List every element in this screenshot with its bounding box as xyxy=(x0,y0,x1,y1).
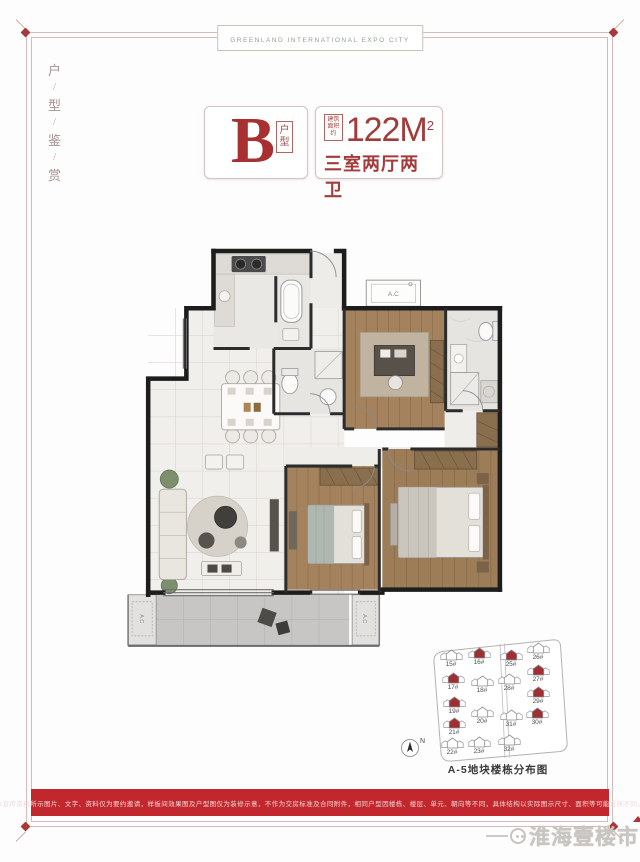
watermark-roof-icon xyxy=(633,816,640,822)
area-value: 122M xyxy=(346,113,427,147)
siteplan-building-20: 20# xyxy=(467,706,497,725)
building-cluster-icon xyxy=(440,649,463,661)
watermark-logo-icon xyxy=(510,828,526,844)
side-slash: / xyxy=(53,116,56,130)
project-name: GREENLAND INTERNATIONAL EXPO CITY xyxy=(230,37,410,44)
unit-letter-tag: 户型 xyxy=(276,121,293,153)
siteplan-building-31: 31# xyxy=(496,709,526,728)
siteplan-building-18: 18# xyxy=(467,675,497,694)
watermark: 淮海壹楼市 xyxy=(486,821,639,851)
watermark-text: 淮海壹楼市 xyxy=(529,821,639,851)
siteplan-building-26: 26# xyxy=(523,642,553,661)
building-cluster-icon xyxy=(441,737,464,749)
balcony: A.C A.C xyxy=(128,595,379,646)
siteplan-building-17: 17# xyxy=(438,672,468,691)
compass-north-icon: N xyxy=(400,735,426,759)
siteplan-building-15: 15# xyxy=(436,649,466,668)
ac-platform-top: A.C xyxy=(366,280,420,306)
poster-page: GREENLAND INTERNATIONAL EXPO CITY 户 / 型 … xyxy=(0,0,640,862)
disclaimer-bar: 本宣传资料所示图片、文字、资料仅为要约邀请，样板间效果图及户型图仅为装修示意，不… xyxy=(31,789,609,816)
side-vertical-label: 户 / 型 / 鉴 / 赏 xyxy=(48,60,61,186)
building-cluster-icon xyxy=(498,734,521,746)
bedroom xyxy=(286,466,379,590)
building-cluster-icon xyxy=(527,664,550,676)
svg-text:N: N xyxy=(420,738,425,745)
siteplan-caption: A-5地块楼栋分布图 xyxy=(418,762,578,777)
study-bedroom xyxy=(344,308,444,429)
ac-label-right: A.C xyxy=(361,614,367,623)
side-char: 户 xyxy=(48,60,61,81)
unit-type-card: B 户型 建筑面积约 122M 2 三室两厅两卫 xyxy=(204,106,443,179)
siteplan-building-27: 27# xyxy=(523,664,553,683)
side-char: 赏 xyxy=(48,165,61,186)
building-cluster-icon xyxy=(443,717,466,729)
corner-tick xyxy=(614,19,625,30)
building-cluster-icon xyxy=(471,675,494,687)
building-cluster-icon xyxy=(526,707,549,719)
siteplan-building-19: 19# xyxy=(439,696,469,715)
side-char: 型 xyxy=(48,95,61,116)
siteplan-building-28: 28# xyxy=(494,673,524,692)
building-cluster-icon xyxy=(471,706,494,718)
siteplan-building-23: 23# xyxy=(464,736,494,755)
corner-tick xyxy=(16,831,27,842)
hall-bathroom xyxy=(274,348,344,413)
side-slash: / xyxy=(53,151,56,165)
building-cluster-icon xyxy=(500,709,523,721)
side-slash: / xyxy=(53,81,56,95)
unit-letter-box: B 户型 xyxy=(204,106,308,179)
building-cluster-icon xyxy=(443,696,466,708)
area-row: 建筑面积约 122M 2 xyxy=(324,113,434,147)
building-cluster-icon xyxy=(468,647,491,659)
side-char: 鉴 xyxy=(48,130,61,151)
master-bathroom xyxy=(447,308,500,410)
ac-label-top: A.C xyxy=(388,291,399,298)
building-cluster-icon xyxy=(442,672,465,684)
building-cluster-icon xyxy=(527,686,550,698)
building-cluster-icon xyxy=(527,642,550,654)
floorplan-drawing: A.C A.C A.C xyxy=(113,248,520,660)
ac-label-left: A.C xyxy=(138,614,144,623)
building-cluster-icon xyxy=(498,673,521,685)
building-cluster-icon xyxy=(468,736,491,748)
siteplan-building-22: 22# xyxy=(437,737,467,756)
rooms-description: 三室两厅两卫 xyxy=(324,150,434,202)
siteplan-building-25: 25# xyxy=(496,649,526,668)
watermark-line xyxy=(486,835,508,837)
project-name-banner: GREENLAND INTERNATIONAL EXPO CITY xyxy=(217,25,423,51)
siteplan-map: 15# 16# 17# 18# 19# 20# 21# 22# 23# 25# … xyxy=(420,634,575,766)
siteplan-building-30: 30# xyxy=(522,707,552,726)
dining-area xyxy=(222,371,280,443)
area-note: 建筑面积约 xyxy=(324,114,343,141)
building-cluster-icon xyxy=(500,649,523,661)
area-exponent: 2 xyxy=(427,118,434,133)
siteplan-building-29: 29# xyxy=(523,686,553,705)
master-bedroom xyxy=(382,413,500,590)
siteplan-building-21: 21# xyxy=(439,717,469,736)
unit-letter: B xyxy=(231,101,275,181)
unit-info-box: 建筑面积约 122M 2 三室两厅两卫 xyxy=(315,106,443,179)
siteplan-building-32: 32# xyxy=(494,734,524,753)
bathtub-room xyxy=(278,276,309,346)
disclaimer-text: 本宣传资料所示图片、文字、资料仅为要约邀请，样板间效果图及户型图仅为装修示意，不… xyxy=(0,798,640,808)
siteplan-building-16: 16# xyxy=(464,647,494,666)
